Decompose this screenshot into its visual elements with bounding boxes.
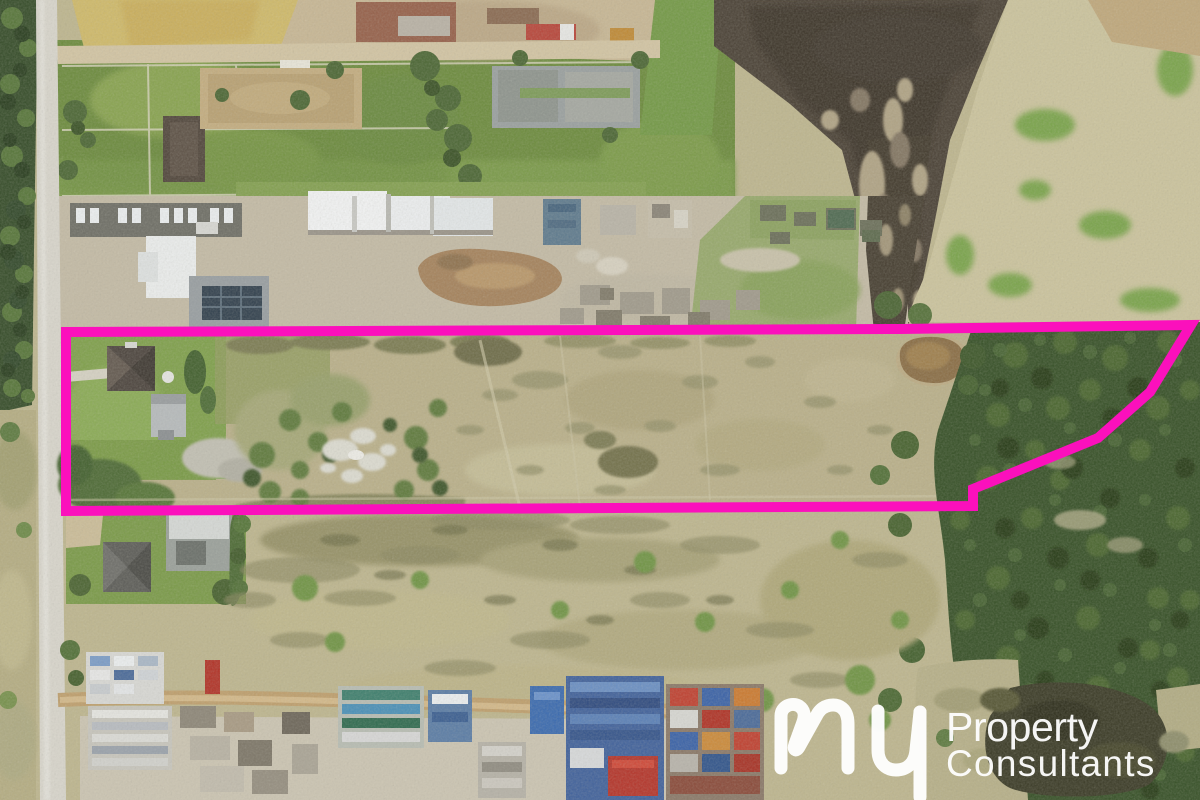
svg-text:Consultants: Consultants: [946, 743, 1156, 784]
